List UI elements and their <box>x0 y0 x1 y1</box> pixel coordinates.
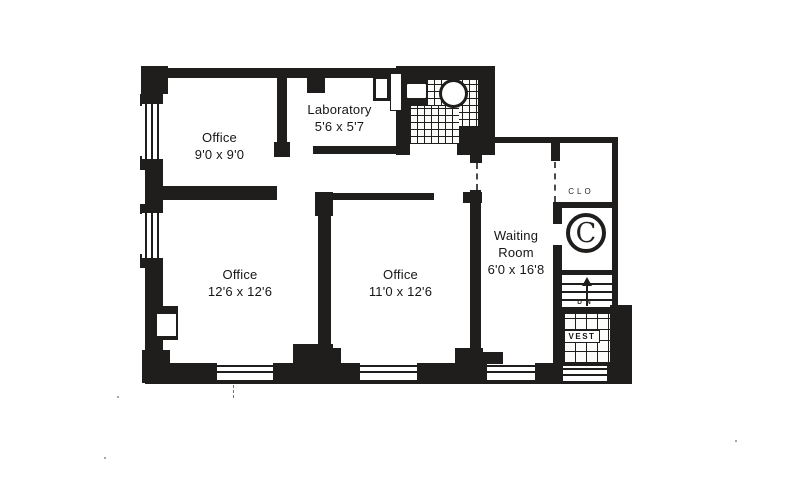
wall-pad <box>141 66 168 94</box>
window-bottom-2 <box>360 363 417 380</box>
laboratory-bottom-wall <box>313 146 397 154</box>
top-wall <box>145 68 400 78</box>
window-left-2 <box>142 213 163 258</box>
right-wall <box>612 142 618 312</box>
vestibule-entry-door <box>563 366 607 381</box>
closet-label: CLO <box>558 187 604 196</box>
scan-speck <box>117 396 119 398</box>
window-left-1 <box>142 104 163 159</box>
shaft-circle: C <box>566 213 606 253</box>
closet-left-stub <box>551 140 560 161</box>
wash-basin <box>439 79 468 108</box>
scan-tick <box>233 385 235 398</box>
bathroom-door <box>410 144 457 155</box>
wall-pad <box>142 350 170 383</box>
room-dims: 6'0 x 16'8 <box>481 261 551 278</box>
stairs-down-label: DN <box>564 299 608 306</box>
wall-notch-inset <box>157 314 176 336</box>
room-dims: 12'6 x 12'6 <box>164 283 316 300</box>
window-bottom-3 <box>487 363 535 380</box>
wall-stub <box>483 352 503 364</box>
room-office-bottom-middle: Office 11'0 x 12'6 <box>332 266 469 300</box>
room-waiting-room: Waiting Room 6'0 x 16'8 <box>481 227 551 278</box>
hall-wall-left <box>162 186 277 200</box>
room-name: Laboratory <box>283 101 396 118</box>
room-name: Waiting <box>481 227 551 244</box>
waiting-room-left-stub <box>470 147 482 163</box>
scan-speck <box>735 440 737 442</box>
laboratory-sink <box>373 76 390 101</box>
toilet <box>405 82 428 100</box>
waiting-room-left-wall <box>470 190 481 363</box>
vestibule-label-box: VEST <box>564 330 600 343</box>
shaft-door <box>553 222 562 247</box>
room-dims: 11'0 x 12'6 <box>332 283 469 300</box>
door-jamb <box>274 142 290 157</box>
office-divider-wall <box>318 196 331 363</box>
window-bottom-1 <box>217 363 273 380</box>
bathroom-tile-floor <box>410 106 459 144</box>
shaft-label: C <box>576 218 597 249</box>
room-name: Office <box>163 129 276 146</box>
floor-plan: DN VEST CLO C Office 9'0 x 9'0 Laborator… <box>0 0 800 500</box>
stair-left-wall <box>553 271 562 367</box>
vestibule-label: VEST <box>569 332 596 341</box>
room-dims: 5'6 x 5'7 <box>283 118 396 135</box>
room-name: Room <box>481 244 551 261</box>
room-office-top-left: Office 9'0 x 9'0 <box>163 129 276 163</box>
room-office-bottom-left: Office 12'6 x 12'6 <box>164 266 316 300</box>
hall-wall-right <box>333 193 434 200</box>
shaft-left-wall-a <box>553 206 562 222</box>
shaft-left-wall-b <box>553 246 562 273</box>
wall-stub <box>455 348 483 366</box>
room-dims: 9'0 x 9'0 <box>163 146 276 163</box>
room-name: Office <box>164 266 316 283</box>
closet-bottom-wall <box>553 202 618 208</box>
room-laboratory: Laboratory 5'6 x 5'7 <box>283 101 396 135</box>
scan-speck <box>104 457 106 459</box>
shaft-bottom-wall <box>553 270 618 275</box>
chimney-stub <box>307 68 325 93</box>
waiting-room-opening <box>476 163 478 190</box>
closet-opening <box>554 162 556 202</box>
room-name: Office <box>332 266 469 283</box>
wall-stub <box>325 348 341 364</box>
stair-arrow-head <box>582 277 592 286</box>
